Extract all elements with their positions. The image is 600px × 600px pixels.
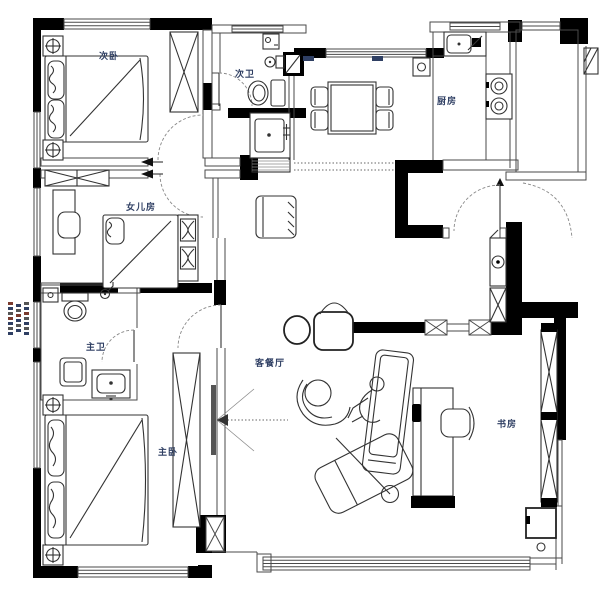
armchair-cushion [305, 380, 331, 406]
room-label-daughters-room: 女儿房 [126, 201, 156, 213]
window-tag [303, 56, 314, 61]
room-label-kitchen: 厨房 [437, 95, 457, 107]
pouf [284, 316, 310, 344]
room-label-living-dining: 客餐厅 [254, 357, 285, 369]
door-arc-entry-outer [523, 183, 572, 238]
lounge-chair [314, 312, 353, 350]
living-room-furniture [284, 303, 416, 517]
floor-plan-drawing: 次卧 次卫 厨房 女儿房 主卫 主卧 客餐厅 书房 [0, 0, 600, 600]
stove [486, 74, 512, 119]
dimension-annotation [8, 302, 29, 335]
dining-set [303, 56, 393, 134]
floor-plan: 次卧 次卫 厨房 女儿房 主卫 主卧 客餐厅 书房 [0, 0, 600, 600]
wall-basin [276, 56, 284, 68]
room-label-master-bathroom: 主卫 [86, 341, 106, 353]
room-label-secondary-bathroom: 次卫 [235, 68, 255, 80]
tv [211, 385, 216, 455]
door-arc-secondary-bedroom [158, 115, 203, 160]
dining-table [328, 82, 376, 134]
shower-corner [283, 52, 304, 76]
faucet [472, 38, 481, 47]
chair [376, 87, 393, 107]
person-figure [348, 377, 384, 422]
chaise [312, 430, 417, 516]
daughters-room-furniture [45, 170, 198, 288]
window-tag [372, 56, 383, 61]
flue-box [413, 58, 430, 76]
cabinet [526, 508, 556, 538]
toilet-tank [271, 80, 285, 106]
drain-box [43, 288, 58, 302]
chair [311, 110, 328, 130]
master-bathroom-fixtures [43, 282, 130, 401]
chair [376, 110, 393, 130]
room-label-secondary-bedroom: 次卧 [99, 50, 119, 62]
entry-fixtures [490, 230, 506, 322]
door-arc-entry [454, 185, 500, 231]
room-label-master-bedroom: 主卧 [158, 446, 178, 458]
sliding-track [294, 163, 395, 170]
door-arc-daughters-room [160, 174, 203, 217]
master-bedroom-furniture [43, 353, 288, 565]
desk-chair [58, 212, 80, 238]
chair [311, 87, 328, 107]
secondary-bedroom-furniture [43, 32, 198, 160]
monitor [412, 404, 421, 422]
door-arc-master-bedroom [178, 305, 221, 348]
room-label-study: 书房 [497, 418, 517, 430]
study-furniture [411, 323, 557, 551]
knob [537, 543, 545, 551]
desk-chair [441, 409, 470, 437]
toilet-tank [62, 293, 88, 301]
